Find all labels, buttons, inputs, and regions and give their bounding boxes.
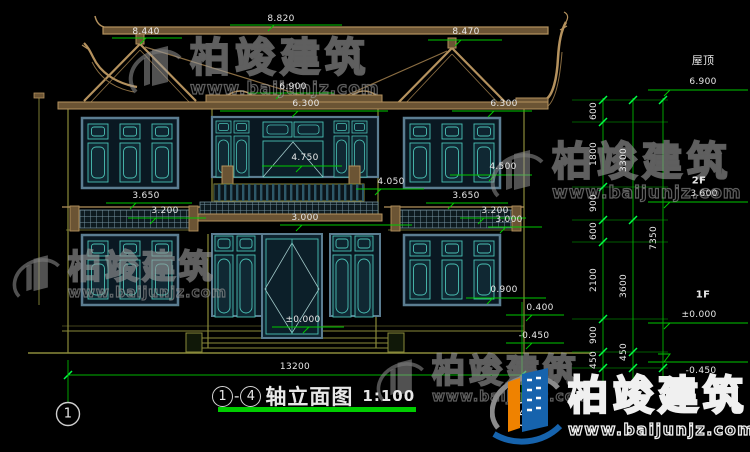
watermark-url: www.baijunjz.com	[552, 185, 742, 202]
watermark-brand: 柏竣建筑	[552, 142, 742, 182]
watermark-logo-icon	[12, 246, 64, 304]
window-group-2f-left	[82, 118, 178, 188]
watermark-url: www.baijunjz.com	[68, 286, 227, 300]
window-group-2f-right	[404, 118, 500, 188]
watermark-brand: 柏竣建筑	[68, 250, 227, 283]
watermark: 柏竣建筑 www.baijunjz.com	[490, 140, 742, 204]
brand-logo-text: 柏竣建筑	[568, 376, 750, 416]
watermark: 柏竣建筑 www.baijunjz.com	[128, 36, 380, 100]
title-dash: -	[234, 387, 239, 405]
main-door	[262, 234, 322, 338]
axis-bubble: 4	[240, 386, 261, 407]
watermark-brand: 柏竣建筑	[190, 38, 380, 78]
axis-bubble: 1	[212, 386, 233, 407]
title-scale: 1:100	[362, 387, 415, 405]
brand-logo-url: www.baijunjz.com	[568, 420, 750, 439]
watermark-url: www.baijunjz.com	[190, 81, 380, 98]
watermark: 柏竣建筑 www.baijunjz.com	[12, 246, 227, 304]
watermark-logo-icon	[490, 140, 548, 204]
watermark-logo-icon	[128, 36, 186, 100]
brand-logo-icon	[490, 364, 566, 450]
brand-logo: 柏竣建筑 www.baijunjz.com	[490, 364, 750, 450]
title-underline	[218, 407, 416, 412]
cad-elevation-canvas: 柏竣建筑 www.baijunjz.com 柏竣建筑 www.baijunjz.…	[0, 0, 750, 452]
window-group-1f-right	[404, 235, 500, 305]
